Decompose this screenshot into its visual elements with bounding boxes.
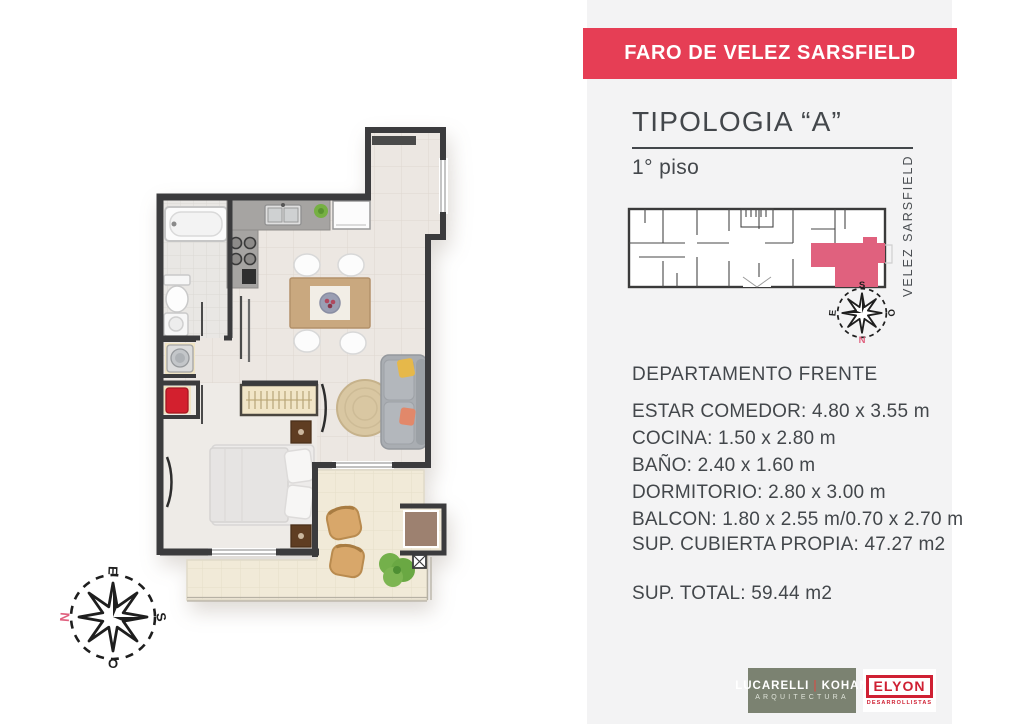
compass-letter: E [105,566,120,575]
brochure-page: E S O N FARO DE VELEZ SARSFIELD TIPOLOGI… [0,0,1024,724]
closet [241,385,317,415]
compass-rose: E S O N [63,567,163,667]
washing-machine [165,343,195,374]
compass-letter: O [884,308,896,317]
unit-type-label: DEPARTAMENTO FRENTE [632,364,878,386]
typology-title: TIPOLOGIA “A” [632,106,842,138]
building-key-plan [625,199,897,296]
dimension-line: ESTAR COMEDOR: 4.80 x 3.55 m [632,401,963,428]
fridge [333,201,370,229]
title-underline [632,147,913,149]
architecture-logo: LUCARELLI | KOHAN ARQUITECTURA [748,668,856,713]
architecture-subtitle: ARQUITECTURA [755,694,849,701]
compass-letter: E [827,309,839,316]
compass-star [833,284,891,342]
compass-letter: N [859,335,866,346]
counter-plant [314,204,328,218]
developer-name: ELYON [866,675,934,698]
bed [210,445,314,525]
kitchen-sink [265,203,301,225]
dimensions-list: ESTAR COMEDOR: 4.80 x 3.55 m COCINA: 1.5… [632,401,963,536]
balcony-chair [325,505,363,541]
developer-subtitle: DESARROLLISTAS [867,700,932,706]
dimension-line: BALCON: 1.80 x 2.55 m/0.70 x 2.70 m [632,509,963,536]
balcony-shelf [372,136,416,145]
compass-letter: O [108,656,118,671]
key-plan-compass: S O N E [833,284,891,342]
street-label: VELEZ SARSFIELD [901,197,915,297]
architecture-name-left: LUCARELLI [735,680,809,692]
drain-box [413,555,426,568]
dimension-line: BAÑO: 2.40 x 1.60 m [632,455,963,482]
water-heater [163,386,191,414]
dimension-line: COCINA: 1.50 x 2.80 m [632,428,963,455]
bathroom-sink [164,313,188,336]
sofa [381,355,427,449]
doormat-niche [400,506,444,553]
floor-label: 1° piso [632,156,699,180]
developer-logo: ELYON DESARROLLISTAS [863,669,936,712]
covered-area-label: SUP. CUBIERTA PROPIA: 47.27 m2 [632,534,945,556]
compass-letter: S [859,280,865,291]
bathtub [165,207,227,241]
architecture-name-right: KOHAN [822,680,869,692]
toilet [164,275,190,312]
compass-letter: N [57,612,73,623]
logo-divider: | [813,680,817,692]
total-area-label: SUP. TOTAL: 59.44 m2 [632,583,832,605]
dimension-line: DORMITORIO: 2.80 x 3.00 m [632,482,963,509]
info-panel: FARO DE VELEZ SARSFIELD TIPOLOGIA “A” 1°… [587,0,952,724]
balcony-chair [329,543,366,579]
dining-table [290,278,370,328]
compass-star [63,567,163,667]
project-title-banner: FARO DE VELEZ SARSFIELD [583,28,957,79]
